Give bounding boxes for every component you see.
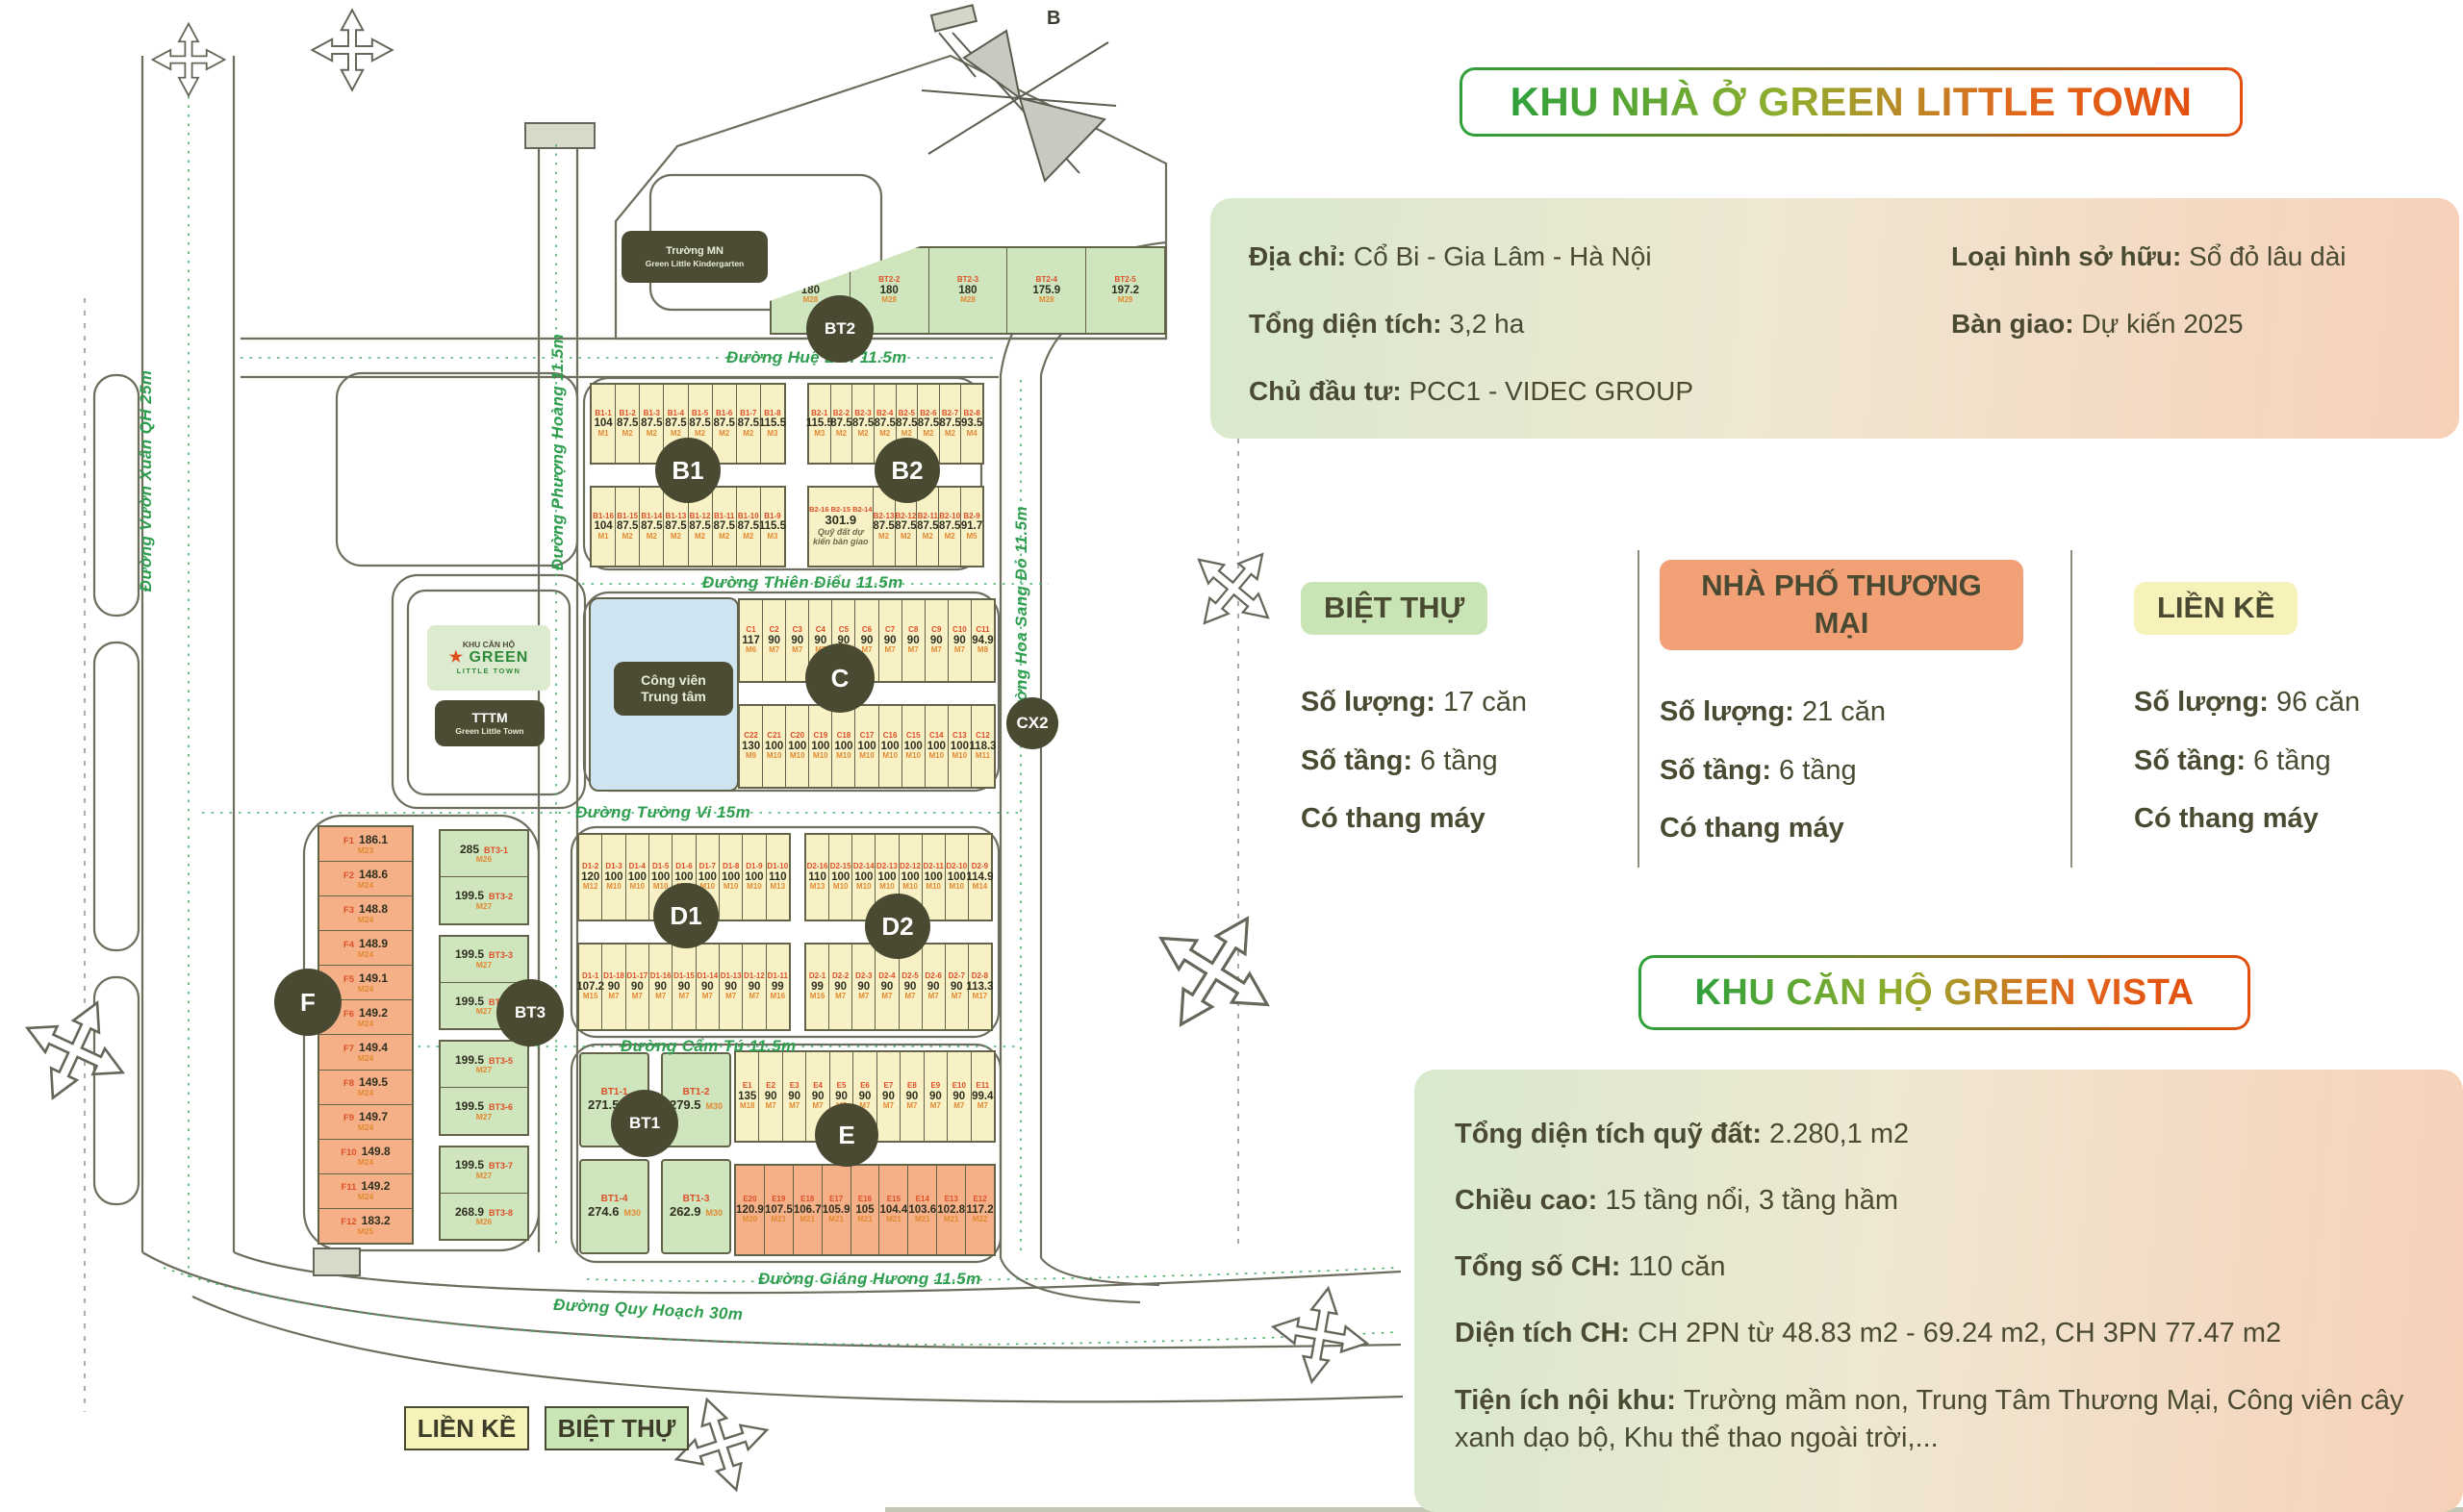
master-plan-poster: B Trường MN Green Little Kindergarten KH… (0, 0, 2463, 1512)
road-cam-tu: Đường Cẩm Tú 11.5m (621, 1037, 797, 1056)
lot-F10: F10149.8M24 (319, 1139, 412, 1173)
lot-D2-7: D2-790M7 (945, 945, 968, 1029)
lot-C18: C18100M10 (831, 706, 854, 787)
lot-F12: F12183.2M25 (319, 1208, 412, 1243)
card-row: Số lượng: 21 căn (1660, 694, 2025, 731)
lot-B2-10: B2-1087.5M2 (938, 488, 960, 566)
lot-E3: E390M7 (782, 1052, 805, 1141)
section-title-green-vista: KHU CĂN HỘ GREEN VISTA (1638, 955, 2250, 1030)
tttm-label: TTTM Green Little Town (435, 700, 545, 746)
lot-B1-16: B1-16104M1 (592, 488, 615, 566)
lot-E18: E18106.7M21 (793, 1166, 822, 1254)
lot-BT3-1: 285BT3-1M26 (441, 831, 527, 876)
lot-BT1-4: BT1-4274.6M30 (579, 1159, 649, 1254)
lot-B2-7: B2-787.5M2 (939, 385, 961, 463)
lot-C21: C21100M10 (762, 706, 785, 787)
lot-D1-3: D1-3100M10 (601, 835, 624, 920)
block-BT3-pair: 199.5BT3-5M27199.5BT3-6M27 (439, 1040, 529, 1136)
lot-D2-6: D2-690M7 (922, 945, 945, 1029)
card-note: Có thang máy (1301, 803, 1599, 835)
lot-F11: F11149.2M24 (319, 1173, 412, 1208)
info-column-left: Địa chỉ: Cổ Bi - Gia Lâm - Hà NộiTổng di… (1249, 239, 1693, 440)
card-row: Số tầng: 6 tầng (1301, 743, 1599, 780)
project-info-panel: Địa chỉ: Cổ Bi - Gia Lâm - Hà NộiTổng di… (1210, 198, 2459, 439)
lot-BT2-5: BT2-5197.2M29 (1085, 248, 1164, 333)
info-row: Tiện ích nội khu: Trường mầm non, Trung … (1455, 1382, 2426, 1457)
block-BT3-pair: 285BT3-1M26199.5BT3-2M27 (439, 829, 529, 925)
lot-BT3-5: 199.5BT3-5M27 (441, 1042, 527, 1087)
lot-F7: F7149.4M24 (319, 1034, 412, 1069)
block-label-D2: D2 (865, 894, 930, 959)
lot-D1-11: D1-1199M16 (766, 945, 789, 1029)
lot-BT2-4: BT2-4175.9M28 (1006, 248, 1085, 333)
vista-rows: Tổng diện tích quỹ đất: 2.280,1 m2Chiều … (1455, 1116, 2426, 1486)
lot-B1-3: B1-387.5M2 (639, 385, 663, 463)
lot-D1-8: D1-8100M10 (719, 835, 742, 920)
park-label: Công viên Trung tâm (614, 662, 733, 716)
info-row: Bàn giao: Dự kiến 2025 (1951, 306, 2347, 342)
lot-C10: C1090M7 (948, 600, 971, 681)
logo-brand: ★ GREEN (449, 649, 529, 667)
lot-D1-17: D1-1790M7 (625, 945, 648, 1029)
lot-C8: C890M7 (901, 600, 925, 681)
info-row: Chiều cao: 15 tầng nổi, 3 tầng hầm (1455, 1182, 2426, 1220)
block-label-E: E (815, 1103, 878, 1167)
lot-F8: F8149.5M24 (319, 1070, 412, 1104)
lot-B1-2: B1-287.5M2 (615, 385, 639, 463)
info-row: Tổng số CH: 110 căn (1455, 1248, 2426, 1286)
card-badge-1: BIỆT THỰ (1301, 582, 1487, 635)
lot-B2-8: B2-893.5M4 (960, 385, 982, 463)
lot-E1: E1135M18 (736, 1052, 758, 1141)
lot-B1-15: B1-1587.5M2 (615, 488, 639, 566)
block-D1-bottom: D1-1107.2M15D1-1890M7D1-1790M7D1-1690M7D… (577, 943, 791, 1031)
info-row: Tổng diện tích: 3,2 ha (1249, 306, 1693, 342)
legend-lien-ke: LIỀN KỀ (404, 1406, 529, 1450)
lot-D1-2: D1-2120M12 (579, 835, 601, 920)
info-column-right: Loại hình sở hữu: Sổ đỏ lâu dàiBàn giao:… (1951, 239, 2347, 373)
block-C-bottom: C22130M9C21100M10C20100M10C19100M10C1810… (738, 704, 996, 789)
logo-line1: KHU CĂN HỘ (463, 641, 515, 650)
lot-E19: E19107.5M21 (764, 1166, 793, 1254)
block-label-BT1: BT1 (611, 1090, 678, 1157)
lot-B2-3: B2-387.5M2 (851, 385, 874, 463)
lot-C9: C990M7 (925, 600, 948, 681)
lot-B2-9: B2-991.7M5 (960, 488, 982, 566)
lot-F1: F1186.1M23 (319, 827, 412, 861)
kindergarten-line2: Green Little Kindergarten (646, 259, 745, 269)
lot-quy-dat: B2-16 B2-15 B2-14301.9Quỹ đất dự kiến bà… (809, 488, 873, 566)
lot-D2-15: D2-15100M10 (828, 835, 851, 920)
lot-B1-14: B1-1487.5M2 (639, 488, 663, 566)
lot-D1-16: D1-1690M7 (648, 945, 672, 1029)
card-badge-3: LIỀN KỀ (2134, 582, 2298, 635)
card-row: Số lượng: 17 căn (1301, 685, 1599, 721)
lot-B1-6: B1-687.5M2 (712, 385, 736, 463)
road-phuong-hoang: Đường Phượng Hoàng 11.5m (548, 334, 568, 570)
lot-E16: E16105M21 (851, 1166, 879, 1254)
lot-C7: C790M7 (878, 600, 901, 681)
card-badge-2: NHÀ PHỐ THƯƠNG MẠI (1660, 560, 2023, 650)
block-label-B1: B1 (655, 438, 721, 503)
legend-lien-ke-label: LIỀN KỀ (418, 1414, 517, 1444)
master-plan-map: B Trường MN Green Little Kindergarten KH… (0, 0, 1414, 1512)
block-label-B2: B2 (875, 438, 940, 503)
card-row: Số tầng: 6 tầng (2134, 743, 2423, 780)
road-thien-dieu: Đường Thiên Điểu 11.5m (702, 573, 903, 592)
kindergarten-line1: Trường MN (666, 245, 724, 259)
compass-north-label: B (1047, 8, 1060, 30)
info-row: Loại hình sở hữu: Sổ đỏ lâu dài (1951, 239, 2347, 275)
block-label-CX2: CX2 (1006, 697, 1058, 749)
lot-D2-10: D2-10100M10 (945, 835, 968, 920)
lot-E15: E15104.4M21 (878, 1166, 907, 1254)
road-tuong-vi: Đường Tường Vi 15m (575, 803, 750, 822)
lot-C16: C16100M10 (878, 706, 901, 787)
block-F: F1186.1M23F2148.6M24F3148.8M24F4148.9M24… (317, 825, 414, 1245)
card-divider-2 (2070, 550, 2072, 868)
block-label-C: C (805, 643, 875, 713)
star-icon: ★ (449, 649, 464, 666)
lot-B1-8: B1-8115.5M3 (760, 385, 784, 463)
lot-C15: C15100M10 (901, 706, 925, 787)
card-row: Số tầng: 6 tầng (1660, 753, 2025, 790)
lot-B2-2: B2-287.5M2 (830, 385, 852, 463)
lot-B1-7: B1-787.5M2 (736, 385, 760, 463)
lot-BT3-8: 268.9BT3-8M26 (441, 1193, 527, 1239)
block-label-BT3: BT3 (496, 979, 564, 1046)
lot-C17: C17100M10 (854, 706, 877, 787)
vista-badge-text: KHU CĂN HỘ GREEN VISTA (1694, 972, 2194, 1014)
lot-F3: F3148.8M24 (319, 895, 412, 930)
lot-F2: F2148.6M24 (319, 861, 412, 895)
block-label-D1: D1 (653, 883, 719, 948)
lot-E9: E990M7 (924, 1052, 947, 1141)
lot-F4: F4148.9M24 (319, 930, 412, 965)
block-E-bottom: E20120.9M20E19107.5M21E18106.7M21E17105.… (734, 1164, 996, 1256)
lot-C20: C20100M10 (785, 706, 808, 787)
lot-D1-12: D1-1290M7 (742, 945, 765, 1029)
section-title-green-little-town: KHU NHÀ Ở GREEN LITTLE TOWN (1460, 67, 2243, 137)
card-biet-thu: BIỆT THỰSố lượng: 17 cănSố tầng: 6 tầngC… (1301, 582, 1599, 835)
lot-E14: E14103.6M21 (907, 1166, 936, 1254)
lot-D1-9: D1-9100M10 (742, 835, 765, 920)
lot-B1-10: B1-1087.5M2 (736, 488, 760, 566)
lot-BT3-7: 199.5BT3-7M27 (441, 1147, 527, 1193)
lot-E11: E1199.4M7 (971, 1052, 994, 1141)
compass-rose (922, 5, 1116, 181)
lot-D2-8: D2-8113.3M17 (968, 945, 991, 1029)
info-row: Diện tích CH: CH 2PN từ 48.83 m2 - 69.24… (1455, 1315, 2426, 1352)
lot-C13: C13100M10 (948, 706, 971, 787)
card-row: Số lượng: 96 căn (2134, 685, 2423, 721)
legend-biet-thu: BIỆT THỰ (545, 1406, 689, 1450)
lot-E13: E13102.8M21 (936, 1166, 965, 1254)
lot-E2: E290M7 (758, 1052, 781, 1141)
lot-B1-11: B1-1187.5M2 (712, 488, 736, 566)
lot-D1-13: D1-1390M7 (719, 945, 742, 1029)
lot-BT3-3: 199.5BT3-3M27 (441, 937, 527, 982)
kindergarten-label: Trường MN Green Little Kindergarten (622, 231, 768, 283)
lot-BT3-6: 199.5BT3-6M27 (441, 1087, 527, 1133)
lot-B1-9: B1-9115.5M3 (760, 488, 784, 566)
lot-C3: C390M7 (785, 600, 808, 681)
park-line1: Công viên (641, 672, 706, 690)
lot-E8: E890M7 (900, 1052, 923, 1141)
lot-E7: E790M7 (876, 1052, 900, 1141)
road-vuon-xuan: Đường Vườn Xuân QH 25m (137, 370, 156, 592)
lot-D2-9: D2-9114.9M14 (968, 835, 991, 920)
lot-D1-4: D1-4100M10 (625, 835, 648, 920)
lot-B1-1: B1-1104M1 (592, 385, 615, 463)
block-BT3-pair: 199.5BT3-7M27268.9BT3-8M26 (439, 1146, 529, 1242)
tttm-line2: Green Little Town (455, 726, 523, 737)
tttm-line1: TTTM (471, 710, 507, 727)
lot-C1: C1117M6 (740, 600, 762, 681)
lot-D1-18: D1-1890M7 (601, 945, 624, 1029)
legend-biet-thu-label: BIỆT THỰ (558, 1414, 676, 1444)
logo-brand2: LITTLE TOWN (457, 668, 521, 676)
lot-D2-1: D2-199M16 (806, 945, 828, 1029)
lot-BT1-3: BT1-3262.9M30 (661, 1159, 731, 1254)
lot-D1-1: D1-1107.2M15 (579, 945, 601, 1029)
lot-B2-1: B2-1115.5M3 (809, 385, 830, 463)
lot-D2-11: D2-11100M10 (922, 835, 945, 920)
lot-BT2-3: BT2-3180M28 (928, 248, 1007, 333)
lot-E12: E12117.2M22 (965, 1166, 994, 1254)
info-row: Tổng diện tích quỹ đất: 2.280,1 m2 (1455, 1116, 2426, 1153)
lot-D1-10: D1-10110M13 (766, 835, 789, 920)
lot-C2: C290M7 (762, 600, 785, 681)
card-note: Có thang máy (1660, 813, 2025, 844)
park-line2: Trung tâm (641, 689, 706, 706)
lot-D2-16: D2-16110M13 (806, 835, 828, 920)
lot-D2-3: D2-390M7 (851, 945, 875, 1029)
lot-C22: C22130M9 (740, 706, 762, 787)
lot-C14: C14100M10 (925, 706, 948, 787)
lot-E17: E17105.9M21 (822, 1166, 851, 1254)
lot-D1-14: D1-1490M7 (696, 945, 719, 1029)
card-lien-ke: LIỀN KỀSố lượng: 96 cănSố tầng: 6 tầngCó… (2134, 582, 2423, 835)
card-note: Có thang máy (2134, 803, 2423, 835)
road-hoa-sang-do: Đường Hoa Sang Đỏ 11.5m (1012, 506, 1031, 725)
card-divider-1 (1638, 550, 1639, 868)
lot-D2-2: D2-290M7 (828, 945, 851, 1029)
lot-BT3-2: 199.5BT3-2M27 (441, 876, 527, 922)
road-giang-huong: Đường Giáng Hương 11.5m (758, 1270, 981, 1289)
info-row: Địa chỉ: Cổ Bi - Gia Lâm - Hà Nội (1249, 239, 1693, 275)
lot-C19: C19100M10 (808, 706, 831, 787)
block-label-F: F (274, 969, 342, 1036)
card-nha-pho-thuong-mai: NHÀ PHỐ THƯƠNG MẠISố lượng: 21 cănSố tần… (1660, 560, 2025, 844)
green-little-town-logo: KHU CĂN HỘ ★ GREEN LITTLE TOWN (427, 625, 550, 691)
lot-E10: E1090M7 (947, 1052, 970, 1141)
title-badge-text: KHU NHÀ Ở GREEN LITTLE TOWN (1511, 79, 2193, 125)
lot-F9: F9149.7M24 (319, 1104, 412, 1139)
lot-D1-15: D1-1590M7 (672, 945, 695, 1029)
info-row: Chủ đầu tư: PCC1 - VIDEC GROUP (1249, 373, 1693, 410)
lot-C11: C1194.9M8 (971, 600, 994, 681)
green-vista-panel: Tổng diện tích quỹ đất: 2.280,1 m2Chiều … (1414, 1070, 2463, 1512)
lot-C12: C12118.3M11 (971, 706, 994, 787)
block-label-BT2: BT2 (806, 295, 874, 363)
lot-B2-13: B2-1387.5M2 (873, 488, 895, 566)
lot-E20: E20120.9M20 (736, 1166, 764, 1254)
